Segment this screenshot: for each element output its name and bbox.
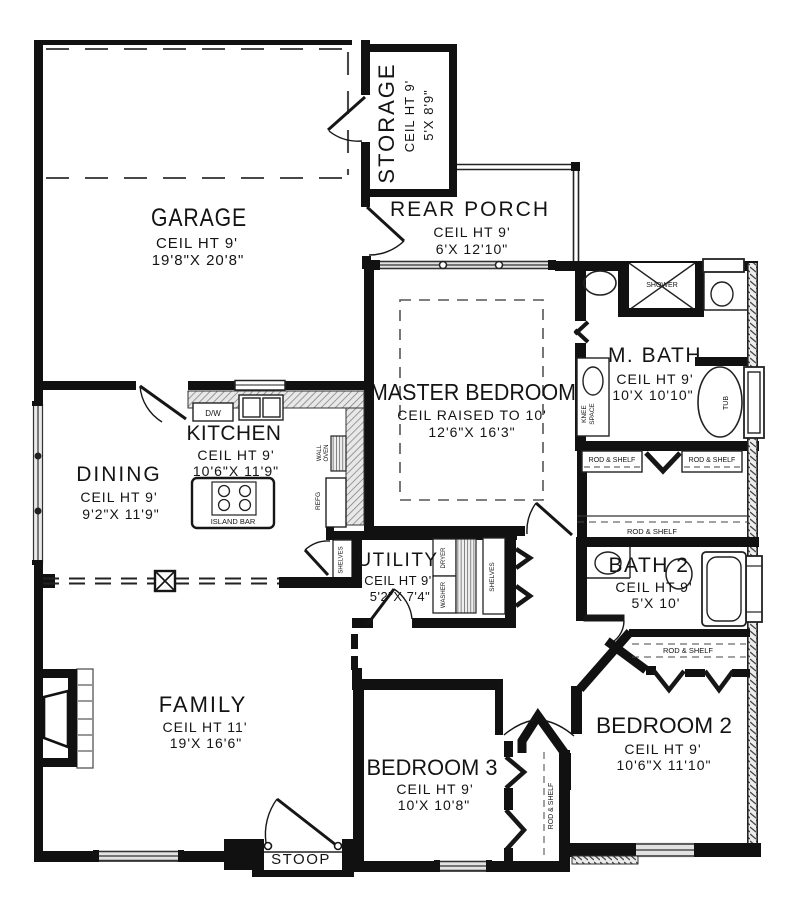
svg-text:10'X 10'10": 10'X 10'10" [612,387,693,403]
svg-text:10'6"X 11'10": 10'6"X 11'10" [617,757,712,773]
svg-text:M. BATH: M. BATH [608,344,702,367]
svg-text:ROD & SHELF: ROD & SHELF [663,646,713,655]
svg-text:6'X 12'10": 6'X 12'10" [436,241,508,257]
svg-text:BATH 2: BATH 2 [609,554,690,577]
svg-text:D/W: D/W [205,409,221,418]
svg-text:9'2"X 11'9": 9'2"X 11'9" [82,506,159,522]
svg-text:BEDROOM 3: BEDROOM 3 [367,755,498,780]
svg-text:MASTER BEDROOM: MASTER BEDROOM [370,379,576,405]
svg-text:10'X 10'8": 10'X 10'8" [398,797,470,813]
svg-text:CEIL HT 9': CEIL HT 9' [616,371,693,387]
svg-text:ROD & SHELF: ROD & SHELF [589,457,636,464]
svg-text:REFG: REFG [315,492,322,510]
svg-text:KNEE: KNEE [581,404,588,422]
svg-text:19'8"X 20'8": 19'8"X 20'8" [152,252,245,269]
svg-text:CEIL HT 9': CEIL HT 9' [615,579,692,595]
svg-text:12'6"X 16'3": 12'6"X 16'3" [428,424,515,440]
svg-text:5'X 8'9": 5'X 8'9" [421,89,436,141]
svg-text:CEIL HT 9': CEIL HT 9' [624,741,701,757]
svg-text:TUB: TUB [723,396,730,410]
svg-text:KITCHEN: KITCHEN [187,422,282,445]
svg-text:ROD & SHELF: ROD & SHELF [627,527,677,536]
svg-text:CEIL HT 9': CEIL HT 9' [433,224,510,240]
svg-text:CEIL HT 11': CEIL HT 11' [163,719,248,735]
svg-text:CEIL RAISED TO 10': CEIL RAISED TO 10' [397,407,547,423]
svg-text:ISLAND BAR: ISLAND BAR [211,517,256,526]
svg-text:STOOP: STOOP [271,851,331,868]
svg-text:ROD & SHELF: ROD & SHELF [548,783,555,830]
svg-text:STORAGE: STORAGE [374,62,399,183]
svg-text:CEIL HT 9': CEIL HT 9' [197,447,274,463]
svg-text:SPACE: SPACE [589,403,596,425]
svg-text:19'X 16'6": 19'X 16'6" [170,735,242,751]
svg-text:REAR PORCH: REAR PORCH [390,198,550,221]
svg-text:5'X 10': 5'X 10' [632,595,681,611]
svg-text:UTILITY: UTILITY [357,550,438,571]
svg-text:DRYER: DRYER [441,547,447,569]
svg-text:SHOWER: SHOWER [646,282,678,289]
svg-text:CEIL HT 9': CEIL HT 9' [402,80,417,152]
svg-text:5'2"X 7'4": 5'2"X 7'4" [370,589,430,604]
svg-text:OVEN: OVEN [324,444,330,461]
svg-text:BEDROOM 2: BEDROOM 2 [596,713,732,738]
svg-text:WASHER: WASHER [441,581,447,608]
svg-text:CEIL HT 9': CEIL HT 9' [80,489,157,505]
svg-text:CEIL HT 9': CEIL HT 9' [396,781,473,797]
svg-text:WALL: WALL [317,444,323,461]
svg-text:CEIL HT 9': CEIL HT 9' [364,573,431,588]
svg-text:CEIL HT 9': CEIL HT 9' [156,235,238,252]
svg-text:10'6"X 11'9": 10'6"X 11'9" [193,463,279,479]
svg-text:SHELVES: SHELVES [339,546,345,573]
svg-text:FAMILY: FAMILY [159,692,248,717]
svg-text:ROD & SHELF: ROD & SHELF [689,457,736,464]
svg-text:DINING: DINING [76,463,162,486]
svg-text:GARAGE: GARAGE [151,204,247,232]
svg-text:SHELVES: SHELVES [489,562,496,592]
